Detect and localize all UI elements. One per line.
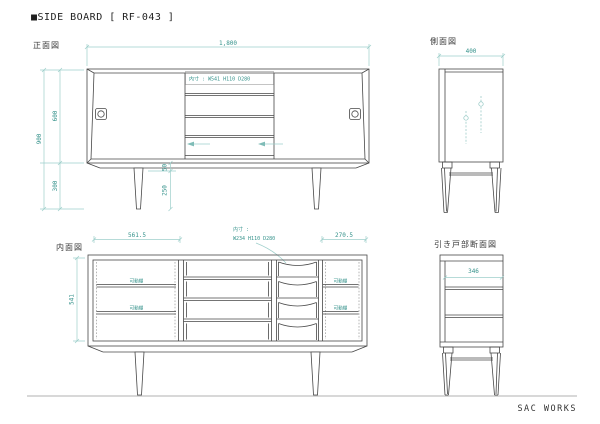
side-hidden-handles — [464, 96, 483, 144]
interior-inner-note: 内寸 : W234 H110 D280 — [233, 226, 286, 263]
side-view-label: 側面図 — [430, 36, 457, 46]
front-inner-note: 内寸 : W541 H110 D280 — [189, 76, 250, 83]
front-view-label: 正面図 — [33, 41, 60, 50]
front-dim-250: 250 — [162, 185, 169, 196]
cad-sheet: ■SIDE BOARD [ RF-043 ] 正面図 1,800 900 600… — [0, 0, 600, 424]
shelf-label: 可動棚 — [130, 278, 144, 285]
front-slide-arrow-left-icon — [187, 142, 210, 147]
drawing-svg: ■SIDE BOARD [ RF-043 ] 正面図 1,800 900 600… — [0, 0, 600, 424]
interior-dim-left-bay-value: 561.5 — [128, 232, 146, 239]
interior-right-bay: 可動棚 可動棚 — [323, 262, 359, 339]
front-drawers: 内寸 : W541 H110 D280 — [185, 72, 274, 156]
front-dim-heights: 900 600 300 — [36, 68, 84, 211]
front-base — [87, 163, 369, 209]
front-dim-width: 1,800 — [85, 40, 371, 66]
shelf-label: 可動棚 — [130, 305, 144, 312]
interior-dim-right-bay-value: 270.5 — [335, 232, 353, 239]
interior-inner-note-line2: W234 H110 D280 — [233, 236, 275, 242]
interior-dim-left-bay: 561.5 — [92, 232, 182, 243]
section-view: 引き戸部断面図 346 — [434, 239, 504, 395]
front-carcass — [87, 69, 369, 163]
interior-base — [88, 346, 367, 395]
shelf-label: 可動棚 — [334, 305, 348, 312]
interior-scallop-drawers — [277, 262, 319, 340]
shelf-label: 可動棚 — [334, 278, 348, 285]
sheet-title: ■SIDE BOARD [ RF-043 ] — [31, 12, 174, 23]
interior-wide-drawers — [184, 262, 272, 340]
interior-inner-note-line1: 内寸 : — [233, 226, 249, 233]
footer-credit: SAC WORKS — [517, 404, 577, 414]
side-dim-depth: 400 — [437, 48, 505, 66]
interior-view: 内面図 561.5 270.5 541 内寸 : W234 H110 D280 — [56, 226, 368, 395]
interior-dim-height-value: 541 — [69, 294, 76, 305]
front-door-handle-left-icon — [96, 109, 107, 120]
front-slide-arrow-right-icon — [258, 142, 283, 147]
section-view-label: 引き戸部断面図 — [434, 239, 497, 249]
interior-dim-right-bay: 270.5 — [320, 232, 368, 243]
front-dim-width-value: 1,800 — [219, 40, 237, 47]
side-dim-depth-value: 400 — [466, 48, 477, 55]
front-dim-600: 600 — [52, 110, 59, 121]
interior-left-bay: 可動棚 可動棚 — [97, 262, 177, 339]
section-base — [443, 347, 501, 395]
side-carcass — [439, 69, 503, 162]
front-dim-900: 900 — [36, 133, 43, 144]
section-dim-inner-depth-value: 346 — [468, 268, 479, 275]
side-base — [442, 162, 502, 213]
front-door-handle-right-icon — [350, 109, 361, 120]
interior-dim-height: 541 — [69, 256, 86, 343]
interior-view-label: 内面図 — [56, 242, 83, 252]
front-dim-50: 50 — [162, 164, 169, 172]
front-dim-300: 300 — [52, 180, 59, 191]
section-dim-inner-depth: 346 — [443, 268, 504, 280]
side-view: 側面図 400 — [430, 36, 505, 213]
front-dim-base: 50 250 — [148, 161, 176, 211]
front-view: 正面図 1,800 900 600 300 内寸 : W541 H1 — [33, 40, 371, 211]
